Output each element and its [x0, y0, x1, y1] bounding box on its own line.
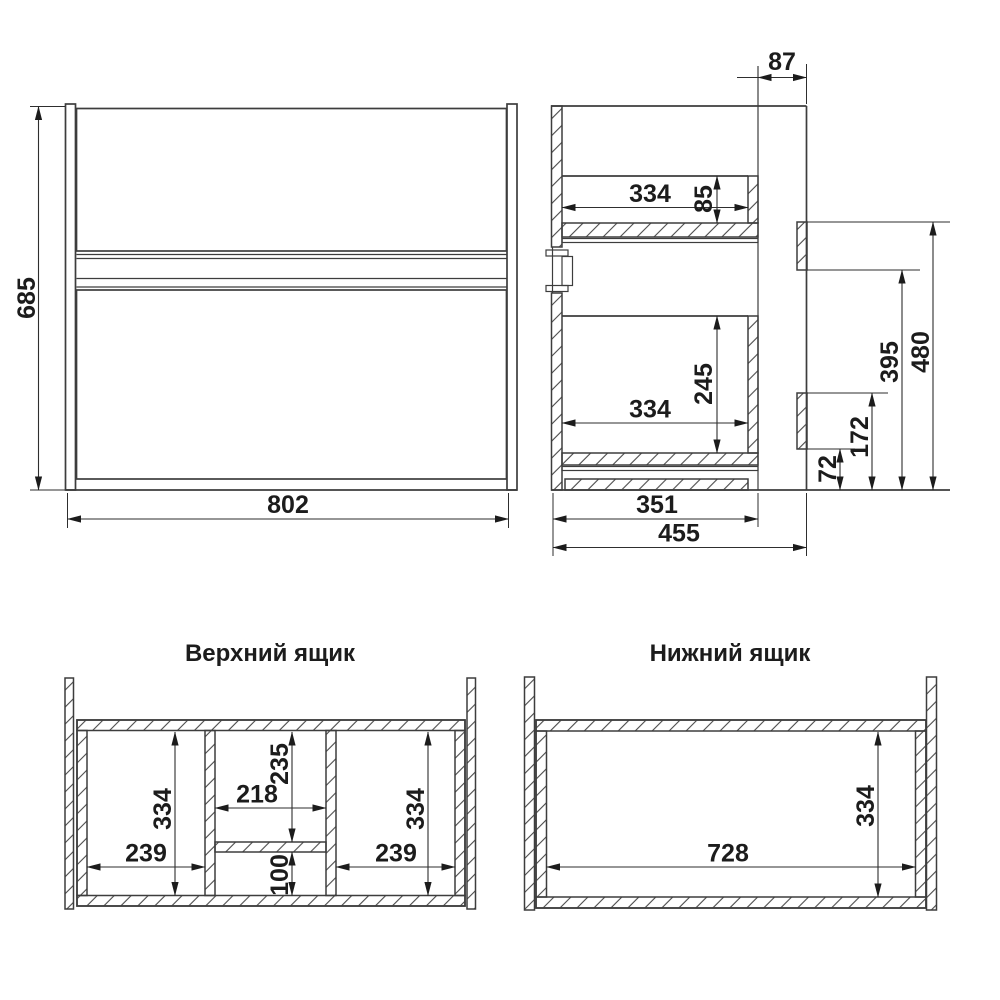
upper-drawer-slide-rail: [562, 239, 758, 243]
cabinet-dimension-drawing: 685 802 334 85: [0, 0, 1000, 1000]
lower-drawer-slide-rail: [562, 467, 758, 471]
side-section-view: 334 85 334 245 87 72: [546, 48, 950, 556]
dim-455-label: 455: [658, 520, 700, 548]
dim-lowerview-728-label: 728: [707, 840, 749, 868]
upper-box-left-wall: [77, 731, 87, 896]
lower-drawer-title: Нижний ящик: [650, 640, 812, 667]
dim-upperview-left-239-label: 239: [125, 840, 167, 868]
technical-drawing-page: 685 802 334 85: [0, 0, 1000, 1000]
dim-245-label: 245: [690, 363, 718, 405]
side-front-panel-lower: [552, 293, 563, 490]
dim-upperview-100-label: 100: [266, 854, 294, 896]
dim-87-label: 87: [768, 48, 796, 76]
side-cabinet-bottom-panel: [565, 479, 748, 490]
lower-box-bottom-wall: [536, 897, 926, 908]
lower-drawer-top-view: Нижний ящик 728 334: [525, 640, 937, 910]
upper-box-right-wall: [455, 731, 465, 896]
dim-351-label: 351: [636, 491, 678, 519]
handle-profile-top-bar: [546, 250, 568, 256]
front-view: 685 802: [13, 104, 517, 528]
dim-395-label: 395: [876, 341, 904, 383]
side-front-panel-upper: [552, 106, 563, 247]
upper-box-divider-left: [205, 731, 215, 896]
dim-480-label: 480: [907, 331, 935, 373]
dim-lower-334-label: 334: [629, 396, 671, 424]
dim-upper-334-label: 334: [629, 180, 671, 208]
handle-profile-bottom-bar: [546, 286, 568, 292]
upper-view-right-rail: [467, 678, 476, 909]
lower-drawer-back-wall: [748, 316, 758, 453]
upper-box-divider-right: [326, 731, 336, 896]
dim-upperview-left-334-label: 334: [149, 788, 177, 830]
lower-box-right-wall: [916, 731, 927, 897]
dim-72-label: 72: [814, 455, 842, 483]
dim-85-label: 85: [690, 185, 718, 213]
lower-view-left-rail: [525, 677, 535, 910]
dim-172-label: 172: [846, 416, 874, 458]
front-right-side-panel: [507, 104, 517, 490]
upper-drawer-bottom-panel: [562, 223, 758, 237]
front-lower-drawer-front: [77, 290, 507, 479]
lower-wall-bracket: [797, 393, 807, 449]
upper-drawer-back-wall: [748, 176, 758, 223]
front-upper-drawer-front: [77, 109, 507, 252]
handle-profile-block: [562, 257, 573, 286]
dim-upperview-right-239-label: 239: [375, 840, 417, 868]
upper-drawer-title: Верхний ящик: [185, 640, 356, 667]
lower-drawer-bottom-panel: [562, 453, 758, 465]
upper-drawer-top-view: Верхний ящик 334 239 235 218 100 334 239: [65, 640, 476, 909]
dim-685-label: 685: [13, 277, 41, 319]
upper-box-bottom-wall: [77, 896, 465, 907]
dim-802-label: 802: [267, 491, 309, 519]
lower-box-top-wall: [536, 720, 926, 731]
side-handle-profile: [546, 247, 573, 293]
side-upper-drawer: 334 85: [562, 176, 758, 243]
dim-upperview-235-label: 235: [266, 743, 294, 785]
upper-box-middle-shelf: [215, 842, 326, 852]
front-left-side-panel: [66, 104, 76, 490]
dim-upperview-218-label: 218: [236, 781, 278, 809]
lower-box-left-wall: [536, 731, 547, 897]
upper-wall-bracket: [797, 222, 807, 270]
upper-box-top-wall: [77, 720, 465, 731]
dim-upperview-right-334-label: 334: [402, 788, 430, 830]
upper-view-left-rail: [65, 678, 74, 909]
dim-lowerview-334-label: 334: [852, 785, 880, 827]
side-lower-drawer: 334 245: [562, 316, 758, 471]
lower-view-right-rail: [927, 677, 937, 910]
